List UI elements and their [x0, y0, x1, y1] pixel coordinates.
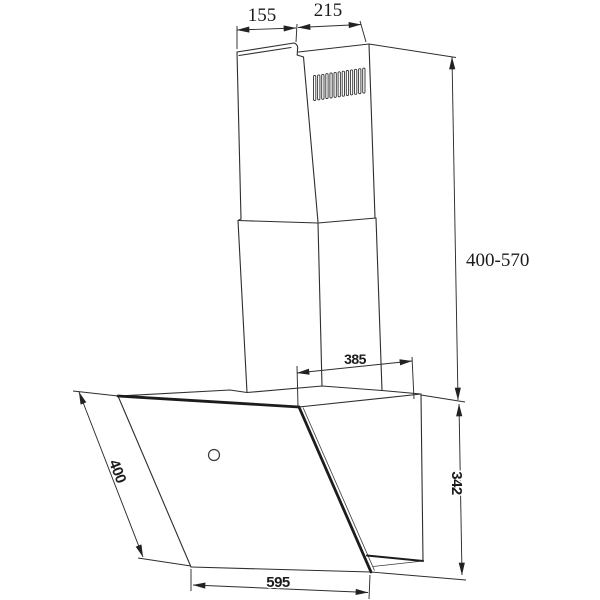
- dimension-155: 155: [237, 5, 297, 49]
- dim-label-385: 385: [344, 351, 367, 367]
- dim-label-400: 400: [105, 457, 129, 485]
- chimney-joint: [238, 218, 376, 223]
- dimension-595: 595: [191, 569, 370, 599]
- dimension-342: 342: [371, 395, 466, 580]
- dimension-400-570: 400-570: [369, 44, 529, 400]
- hood-top-plate: [118, 386, 421, 396]
- technical-drawing-svg: 155 215 400-570 385 400 342 595: [0, 0, 600, 600]
- dimension-400: 400: [73, 391, 191, 566]
- dim-label-215: 215: [314, 0, 343, 21]
- hood-dimension-diagram: 155 215 400-570 385 400 342 595: [0, 0, 600, 600]
- vent-grille: [314, 68, 366, 100]
- dimension-215: 215: [298, 0, 366, 42]
- dim-label-595: 595: [266, 574, 290, 591]
- control-button-circle: [209, 450, 220, 461]
- dim-label-155: 155: [248, 5, 277, 26]
- dimension-385: 385: [297, 351, 414, 407]
- glass-front-panel: [118, 396, 375, 572]
- dim-label-342: 342: [448, 471, 465, 495]
- dim-label-400-570: 400-570: [466, 250, 529, 271]
